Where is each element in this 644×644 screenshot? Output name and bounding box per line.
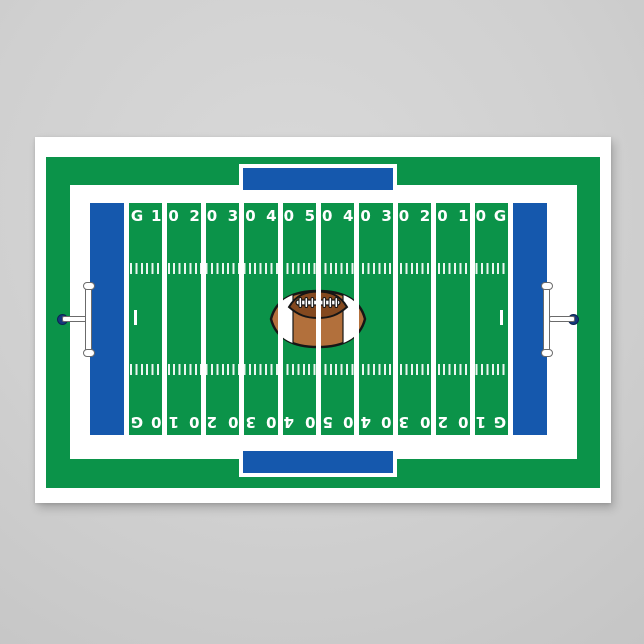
goal-post-left-cap-top: [83, 282, 95, 290]
endzone-left: [90, 203, 124, 435]
football-field: G102030405040302010GG102030405040302010G: [90, 203, 547, 435]
goal-post-right-cap-bottom: [541, 349, 553, 357]
yard-number-bottom: G: [470, 412, 530, 431]
goal-line-dash-left: [134, 310, 137, 325]
yard-number-top: G: [470, 207, 530, 226]
yard-line: [278, 203, 283, 435]
goal-line-dash-right: [500, 310, 503, 325]
yard-line: [239, 203, 244, 435]
yard-line: [201, 203, 206, 435]
yard-line: [431, 203, 436, 435]
endzone-right: [513, 203, 547, 435]
wall-background: G102030405040302010GG102030405040302010G: [0, 0, 644, 644]
goal-line: [124, 203, 129, 435]
team-box-top: [243, 168, 393, 190]
yard-line: [393, 203, 398, 435]
goal-post-left-crossbar: [85, 287, 92, 352]
yard-line: [470, 203, 475, 435]
yard-line: [162, 203, 167, 435]
goal-post-right-cap-top: [541, 282, 553, 290]
football-field-poster: G102030405040302010GG102030405040302010G: [35, 137, 611, 503]
goal-post-right-crossbar: [543, 287, 550, 352]
yard-line: [316, 203, 321, 435]
team-box-bottom: [243, 451, 393, 473]
yard-line: [354, 203, 359, 435]
goal-post-right-pole: [549, 316, 575, 322]
goal-line: [508, 203, 513, 435]
goal-post-left-cap-bottom: [83, 349, 95, 357]
